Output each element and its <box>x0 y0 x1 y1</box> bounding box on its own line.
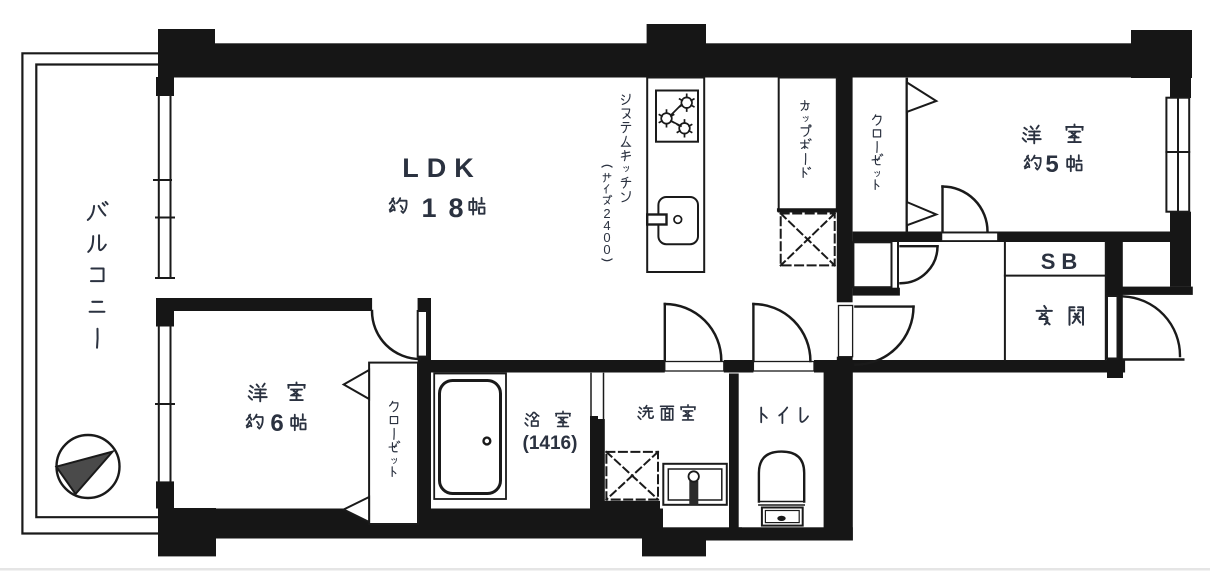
svg-text:6: 6 <box>270 410 283 437</box>
svg-text:8: 8 <box>448 193 463 223</box>
svg-text:LDK: LDK <box>402 153 482 183</box>
svg-text:1: 1 <box>421 193 436 223</box>
svg-text:0: 0 <box>603 242 610 257</box>
svg-text:SB: SB <box>1041 249 1084 274</box>
svg-text:(1416): (1416) <box>523 433 578 454</box>
svg-text:5: 5 <box>1045 151 1058 178</box>
